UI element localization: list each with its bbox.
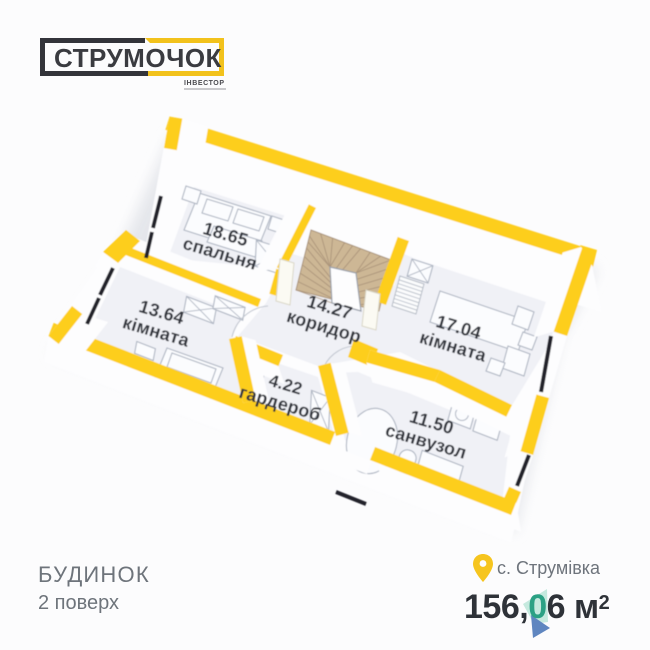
svg-text:СТРУМОЧОК: СТРУМОЧОК <box>54 43 222 73</box>
svg-text:ІНВЕСТОР: ІНВЕСТОР <box>184 80 225 87</box>
